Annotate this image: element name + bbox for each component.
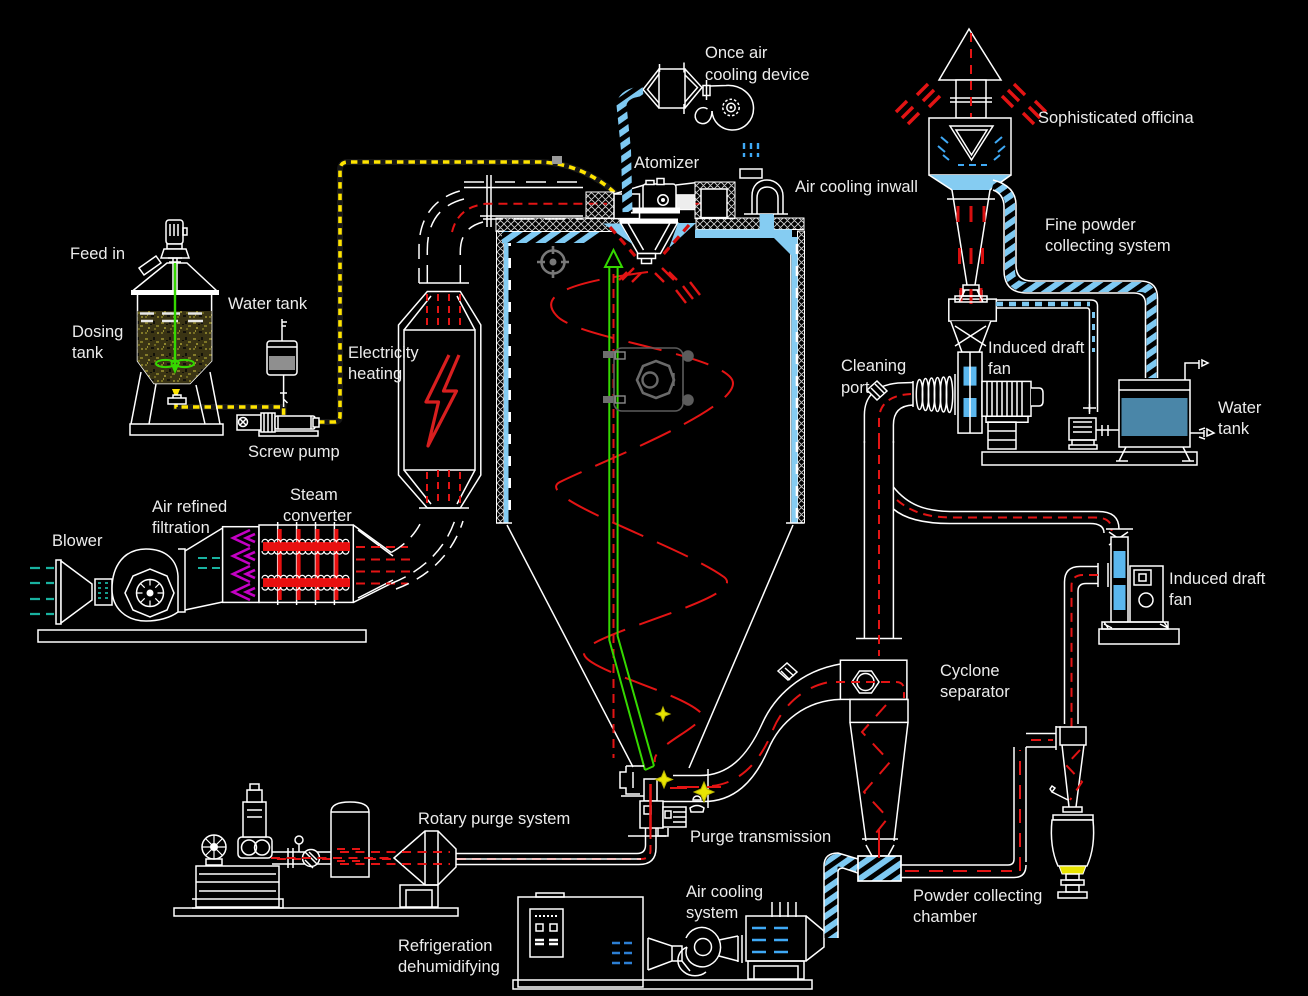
svg-text:Powder collecting: Powder collecting — [913, 887, 1042, 905]
svg-text:port: port — [841, 379, 870, 397]
svg-text:Screw pump: Screw pump — [248, 443, 340, 461]
svg-text:filtration: filtration — [152, 519, 210, 537]
svg-text:tank: tank — [72, 344, 104, 362]
svg-text:Air refined: Air refined — [152, 498, 227, 516]
svg-text:Purge transmission: Purge transmission — [690, 828, 831, 846]
svg-text:Water: Water — [1218, 399, 1262, 417]
svg-text:Blower: Blower — [52, 532, 103, 550]
svg-text:tank: tank — [1218, 420, 1250, 438]
svg-text:dehumidifying: dehumidifying — [398, 958, 500, 976]
svg-text:fan: fan — [1169, 591, 1192, 609]
svg-text:Air cooling: Air cooling — [686, 883, 763, 901]
svg-text:Refrigeration: Refrigeration — [398, 937, 492, 955]
svg-text:Electricity: Electricity — [348, 344, 419, 362]
svg-text:Induced draft: Induced draft — [1169, 570, 1266, 588]
svg-text:Steam: Steam — [290, 486, 338, 504]
svg-text:fan: fan — [988, 360, 1011, 378]
svg-text:Cleaning: Cleaning — [841, 357, 906, 375]
svg-text:Dosing: Dosing — [72, 323, 123, 341]
svg-text:converter: converter — [283, 507, 352, 525]
svg-text:Sophisticated officina: Sophisticated officina — [1038, 109, 1194, 127]
svg-text:Water tank: Water tank — [228, 295, 308, 313]
svg-text:Induced draft: Induced draft — [988, 339, 1085, 357]
svg-text:separator: separator — [940, 683, 1010, 701]
svg-text:Once air: Once air — [705, 44, 768, 62]
svg-text:system: system — [686, 904, 738, 922]
svg-text:chamber: chamber — [913, 908, 978, 926]
svg-text:Feed in: Feed in — [70, 245, 125, 263]
svg-text:heating: heating — [348, 365, 402, 383]
svg-text:Fine powder: Fine powder — [1045, 216, 1136, 234]
svg-text:collecting system: collecting system — [1045, 237, 1171, 255]
svg-text:Cyclone: Cyclone — [940, 662, 1000, 680]
svg-text:Air cooling inwall: Air cooling inwall — [795, 178, 918, 196]
svg-text:Atomizer: Atomizer — [634, 154, 700, 172]
svg-text:cooling device: cooling device — [705, 66, 810, 84]
svg-text:Rotary purge system: Rotary purge system — [418, 810, 570, 828]
